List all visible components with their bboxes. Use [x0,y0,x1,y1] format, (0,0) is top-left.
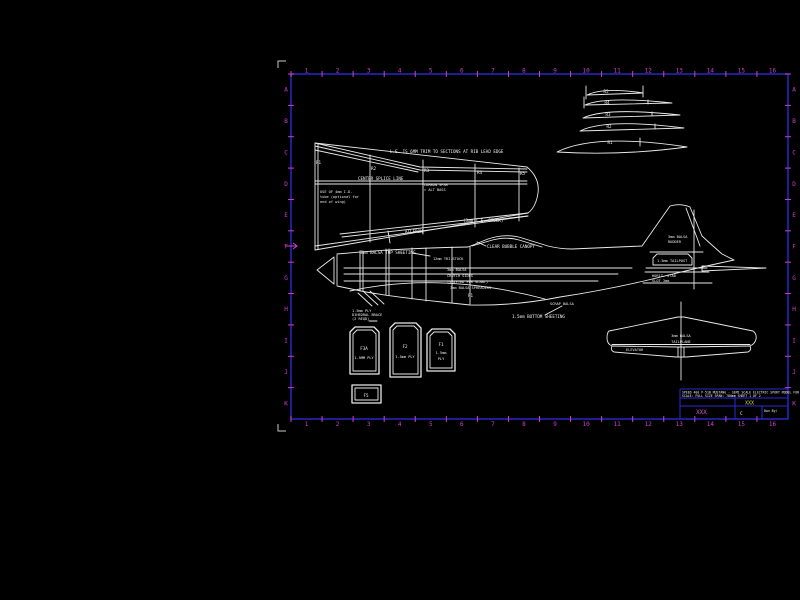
wing-tube-note-3: end of wing) [320,200,346,204]
fin-note-1: 3mm BALSA [668,235,688,239]
tailpost-note: 1.5mm TAILPOST [657,259,688,263]
title-block-field-right: XXX [745,401,754,407]
ruler-label: D [284,181,288,188]
ruler-label: 2 [336,421,340,428]
former-f1-material-1: 1.5mm [436,351,447,355]
ruler-label: E [792,212,796,219]
airfoil-label-r4: R4 [604,100,610,105]
ruler-label: A [792,87,796,94]
ruler-label: 3 [367,421,371,428]
ruler-label: 13 [676,68,684,75]
ruler-label: H [792,306,796,313]
ruler-label: K [284,400,288,407]
ruler-label: 16 [769,68,777,75]
ruler-label: 11 [614,421,622,428]
ruler-label: 8 [522,421,526,428]
title-block-drawn-by: Dwn By/ [764,409,778,413]
airfoil-label-r1: R1 [607,140,613,145]
ruler-label: 9 [553,68,557,75]
former-f3a-name: F3A [360,346,368,351]
stabilizer-plan-drawing: 3mm BALSA TAILPLANE ELEVATOR [607,302,756,380]
ruler-label: 15 [738,421,746,428]
ruler-label: F [792,244,796,251]
scrap-note: SCRAP BALSA [550,302,575,306]
airfoil-label-r5: R5 [603,89,609,94]
cad-viewport: { "border": { "frame_color": "#2a2ad6", … [0,0,800,600]
ruler-label: 7 [491,421,495,428]
ruler-label: C [792,149,796,156]
ruler-label: 10 [582,421,590,428]
ruler-label: J [284,369,288,376]
airfoil-sections-drawing: R5 R4 R3 R2 R1 [557,86,687,153]
ruler-label: I [792,338,796,345]
ruler-label: 14 [707,421,715,428]
ruler-label: 9 [553,421,557,428]
ruler-label: D [792,181,796,188]
ruler-label: E [284,212,288,219]
wing-te-note: (3mm T.E. STOCK) [463,218,503,223]
wing-tube-note-1: USE OF 4mm I.D. [320,190,352,194]
ruler-label: 5 [429,421,433,428]
former-f1-material-2: PLY [438,357,445,361]
nose-note-3: (2 REQD) [352,317,369,321]
rib-label-r4: R4 [477,170,483,175]
cad-drawing-canvas: 1122334455667788991010111112121313141415… [0,0,800,600]
former-f3a-material: 1.5MM PLY [354,356,374,360]
ruler-label: 1 [305,421,309,428]
ruler-label: 3 [367,68,371,75]
ruler-label: J [792,369,796,376]
ruler-label: 6 [460,68,464,75]
fin-note-2: RUDDER [668,240,682,244]
ruler-label: 4 [398,421,402,428]
title-block-field-left: XXX [696,409,707,416]
wing-spar-note-1: CARBON SPAR [424,183,449,187]
rib-label-r5: R5 [520,171,526,176]
ruler-label: B [284,118,288,125]
stab-note-2: TAILPLANE [671,340,690,344]
former-templates-drawing: F3A 1.5MM PLY F2 1.5mm PLY F1 1.5mm PLY … [350,321,455,403]
fuselage-side-view-drawing: 3mm BALSA TOP SHEETING CLEAR BUBBLE CANO… [317,205,766,321]
fuse-top-sheet-note: 3mm BALSA TOP SHEETING [360,250,416,255]
ruler-label: 4 [398,68,402,75]
wing-plan-drawing: L.E. IS 6MM TRIM TO SECTIONS AT RIB LEAD… [315,143,538,250]
crutch-note-3: (SHIFTED FOR SLANT) [447,280,488,284]
former-f2-material: 1.5mm PLY [395,355,415,359]
title-block-rev: C [740,411,743,417]
ruler-label: B [792,118,796,125]
ruler-label: 10 [582,68,590,75]
ruler-label: F [284,244,288,251]
rib-label-r2: R2 [371,166,377,171]
airfoil-label-r3: R3 [605,112,611,117]
aileron-label: AILERON [405,229,423,234]
former-f1-name: F1 [438,342,444,347]
ruler-label: 8 [522,68,526,75]
rib-label-r1: R1 [316,160,322,165]
slot-note-2: SLOT 3mm [652,279,669,283]
former-f5-name: F5 [363,393,369,398]
ruler-label: H [284,306,288,313]
wing-tube-note-2: tube (optional for [320,195,360,199]
title-block: SPEED 400 P-51B MUSTANG - SEMI SCALE ELE… [680,389,800,419]
wing-spar-note-2: = ALT BASS [424,188,446,192]
former-f2-name: F2 [402,344,408,349]
stab-note-1: 3mm BALSA [671,334,691,338]
ruler-label: 13 [676,421,684,428]
ruler-label: K [792,400,796,407]
ruler-label: 2 [336,68,340,75]
crutch-note-1: 3mm BALSA [447,268,467,272]
ruler-label: 7 [491,68,495,75]
ruler-label: G [792,275,796,282]
title-block-line2: SCALE: FULL SIZE SPAN: 780mm SHEET 1 OF … [682,394,761,398]
ruler-label: 11 [614,68,622,75]
rib-label-r3: R3 [424,168,430,173]
ruler-label: C [284,149,288,156]
wing-le-note: L.E. IS 6MM TRIM TO SECTIONS AT RIB LEAD… [390,149,504,154]
ruler-label: I [284,338,288,345]
ruler-label: A [284,87,288,94]
ruler-label: 1 [305,68,309,75]
airfoil-label-r2: R2 [606,124,612,129]
ruler-label: 12 [645,68,653,75]
wing-splice-note: CENTER SPLICE LINE [358,176,404,181]
ruler-label: G [284,275,288,282]
ruler-label: 15 [738,68,746,75]
ruler-label: 12 [645,421,653,428]
slot-note-1: HORIZ. STAB [652,274,676,278]
fuse-f1-label: F1 [468,293,474,298]
ruler-label: 6 [460,421,464,428]
tri-stock-note: 12mm TRI-STOCK [433,257,464,261]
crutch-note-2: CRUTCH SIDES [447,274,473,278]
bottom-sheet-note: 1.5mm BOTTOM SHEETING [512,314,565,319]
canopy-note: CLEAR BUBBLE CANOPY [487,244,535,249]
ruler-label: 16 [769,421,777,428]
ruler-label: 5 [429,68,433,75]
spreader-note: 3mm BALSA SPREADERS [450,286,491,290]
ruler-label: 14 [707,68,715,75]
elevator-label: ELEVATOR [626,348,644,352]
